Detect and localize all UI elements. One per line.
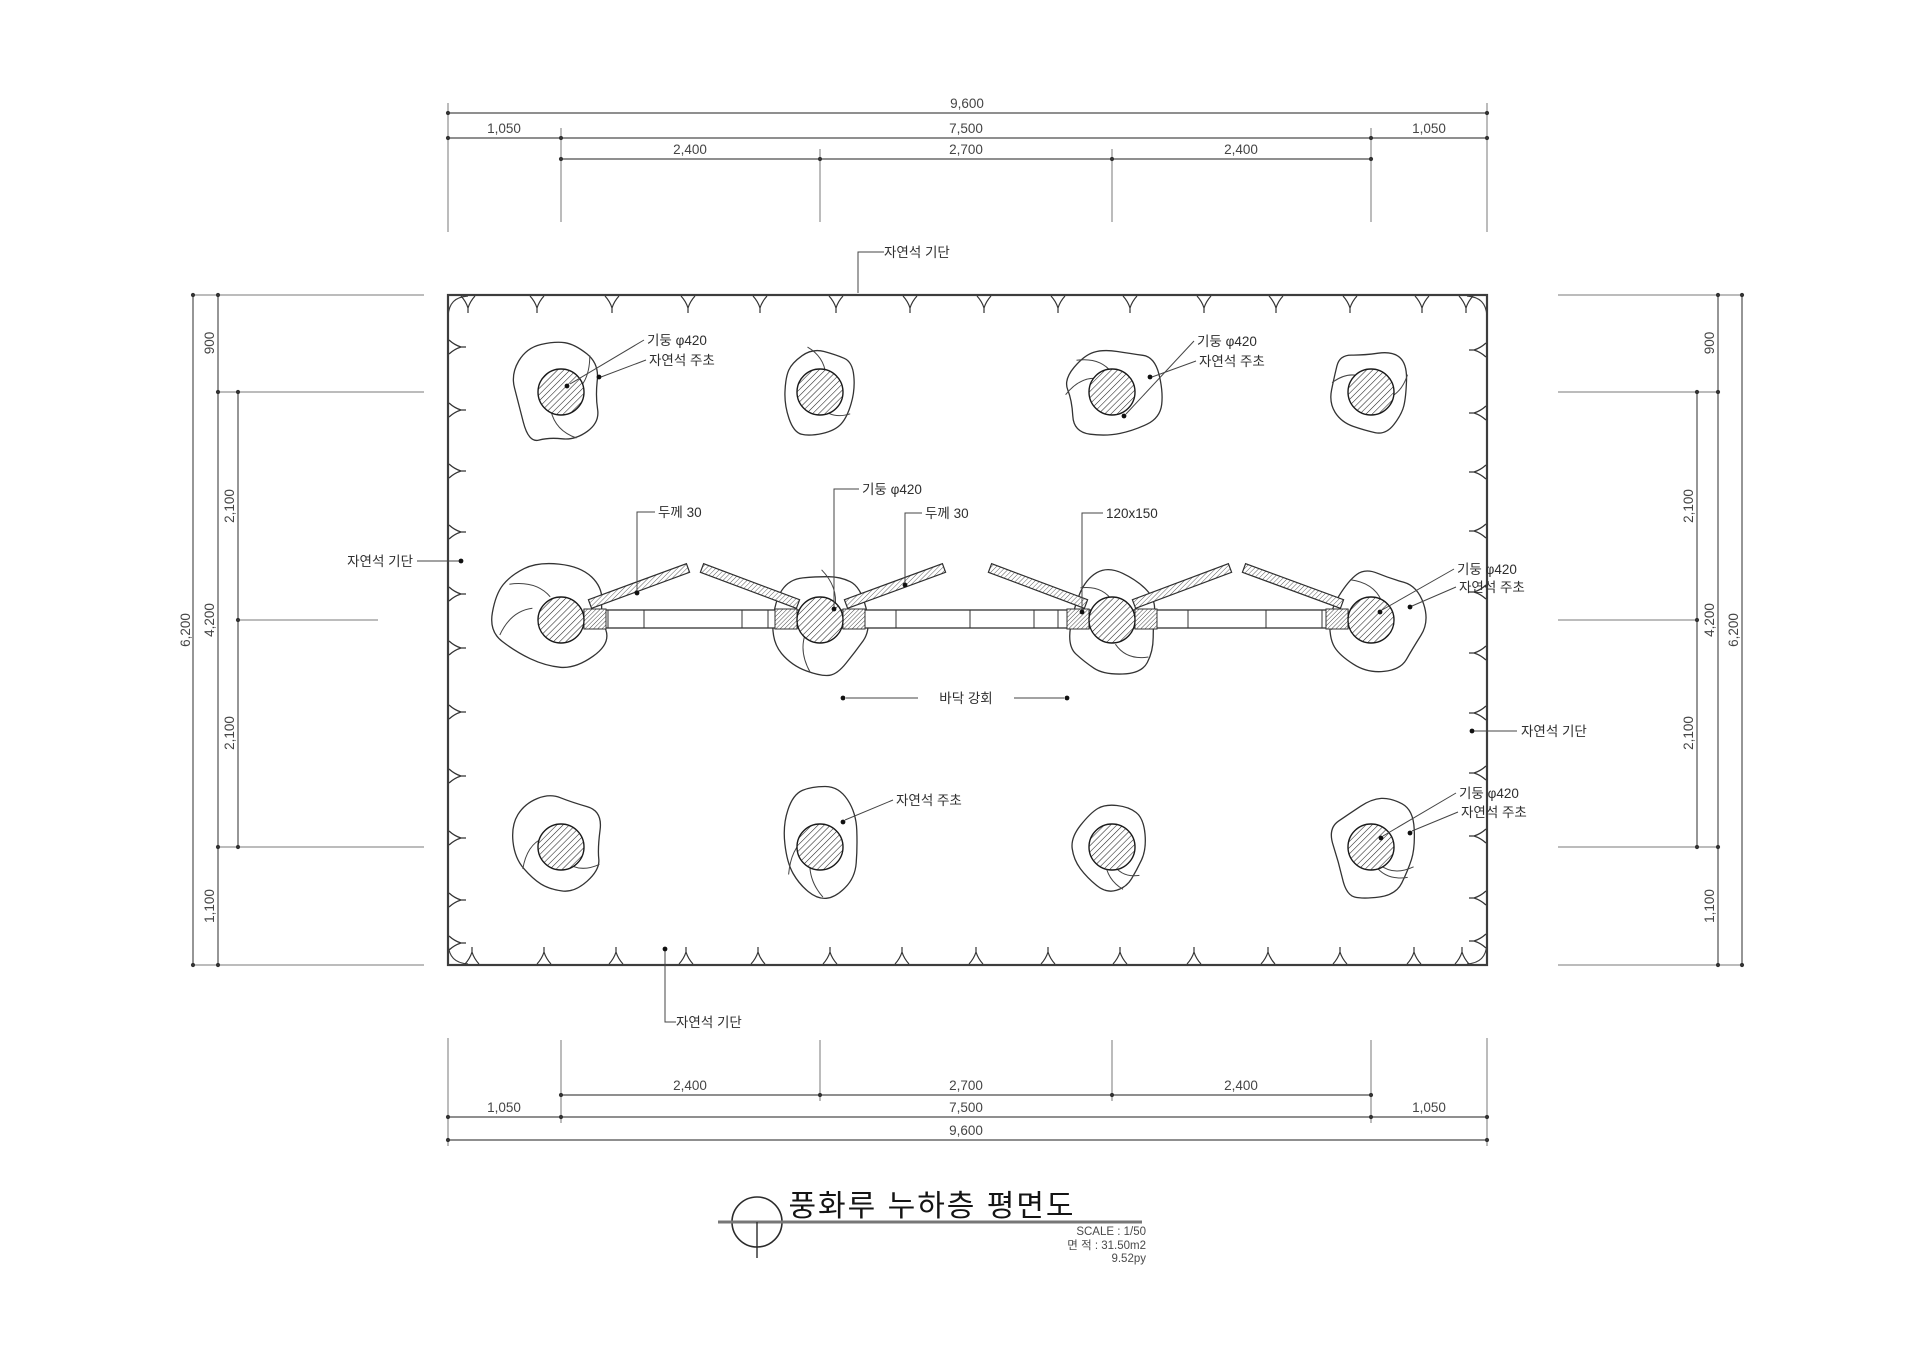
dim-left-lower: 2,100 bbox=[222, 716, 237, 750]
label-stone-base-top: 자연석 기단 bbox=[884, 245, 950, 260]
column-circle bbox=[538, 369, 584, 415]
dimension-tick bbox=[1716, 963, 1720, 967]
leader-dot bbox=[597, 375, 602, 380]
dim-top-bay2: 2,700 bbox=[949, 142, 983, 157]
dimension-tick bbox=[1716, 390, 1720, 394]
dim-bottom-bay2: 2,700 bbox=[949, 1078, 983, 1093]
leader-dot bbox=[663, 947, 668, 952]
label-stone-base-bottom: 자연석 기단 bbox=[676, 1015, 742, 1030]
dimension-tick bbox=[1485, 111, 1489, 115]
label-footing-top-right: 자연석 주초 bbox=[1199, 354, 1265, 369]
column-circle bbox=[1348, 597, 1394, 643]
dimension-tick bbox=[446, 111, 450, 115]
leader-dot bbox=[1148, 375, 1153, 380]
dimension-tick bbox=[1716, 293, 1720, 297]
dim-left-total: 6,200 bbox=[178, 613, 193, 647]
column-circle bbox=[1089, 369, 1135, 415]
label-floor-finish: 바닥 강회 bbox=[939, 691, 992, 706]
column-circle bbox=[797, 824, 843, 870]
dimension-tick bbox=[216, 845, 220, 849]
label-thickness-1: 두께 30 bbox=[658, 505, 702, 520]
dimension-tick bbox=[1695, 845, 1699, 849]
label-column-bottom-right: 기둥 φ420 bbox=[1459, 786, 1519, 801]
dimension-tick bbox=[1740, 293, 1744, 297]
dimension-tick bbox=[1485, 136, 1489, 140]
leader-line bbox=[858, 252, 884, 293]
dim-bottom-total: 9,600 bbox=[949, 1123, 983, 1138]
dim-left-span: 4,200 bbox=[202, 603, 217, 637]
dim-right-upper: 2,100 bbox=[1681, 489, 1696, 523]
beam-block-hatch bbox=[1067, 609, 1089, 629]
dim-bottom-bay3: 2,400 bbox=[1224, 1078, 1258, 1093]
dimension-tick bbox=[236, 845, 240, 849]
label-member-size: 120x150 bbox=[1106, 506, 1158, 521]
leader-dot bbox=[459, 559, 464, 564]
drawing-scale: SCALE : 1/50 bbox=[1076, 1226, 1146, 1238]
label-footing-top-left: 자연석 주초 bbox=[649, 353, 715, 368]
dim-bottom-span: 7,500 bbox=[949, 1100, 983, 1115]
leader-dot bbox=[1378, 610, 1383, 615]
floor-band bbox=[584, 609, 1348, 629]
leader-dot bbox=[1408, 605, 1413, 610]
drawing-title: 풍화루 누하층 평면도 bbox=[788, 1190, 1075, 1223]
column-circle bbox=[797, 369, 843, 415]
dimension-tick bbox=[236, 618, 240, 622]
dim-top-bay3: 2,400 bbox=[1224, 142, 1258, 157]
label-thickness-2: 두께 30 bbox=[925, 506, 969, 521]
leader-dot bbox=[1065, 696, 1070, 701]
label-column-top-left: 기둥 φ420 bbox=[647, 333, 707, 348]
label-footing-bottom-mid: 자연석 주초 bbox=[896, 793, 962, 808]
dimension-tick bbox=[1369, 1115, 1373, 1119]
dimension-tick bbox=[216, 963, 220, 967]
column-circle bbox=[538, 597, 584, 643]
column-circle bbox=[1089, 824, 1135, 870]
column-circle bbox=[1348, 369, 1394, 415]
dimension-tick bbox=[1695, 390, 1699, 394]
dimension-tick bbox=[1740, 963, 1744, 967]
dimension-tick bbox=[1369, 136, 1373, 140]
dimension-tick bbox=[1369, 1093, 1373, 1097]
dimension-tick bbox=[446, 1115, 450, 1119]
dim-top-bay1: 2,400 bbox=[673, 142, 707, 157]
dim-right-bottom: 1,100 bbox=[1702, 889, 1717, 923]
leader-dot bbox=[1122, 414, 1127, 419]
leader-dot bbox=[1379, 836, 1384, 841]
column-circle bbox=[1348, 824, 1394, 870]
beam-block-hatch bbox=[1326, 609, 1348, 629]
title-block: 풍화루 누하층 평면도 SCALE : 1/50 면 적 : 31.50m2 9… bbox=[718, 1190, 1146, 1265]
dimension-tick bbox=[1485, 1138, 1489, 1142]
label-footing-mid-right: 자연석 주초 bbox=[1459, 580, 1525, 595]
column-circle bbox=[797, 597, 843, 643]
beam-block-hatch bbox=[1135, 609, 1157, 629]
dimension-tick bbox=[1369, 157, 1373, 161]
drawing-area: 면 적 : 31.50m2 bbox=[1067, 1239, 1146, 1252]
dim-bottom-right-margin: 1,050 bbox=[1412, 1100, 1446, 1115]
leader-dot bbox=[565, 384, 570, 389]
dimension-tick bbox=[1110, 157, 1114, 161]
beam-block-hatch bbox=[843, 609, 865, 629]
drawing-area-pyeong: 9.52py bbox=[1111, 1253, 1146, 1265]
dim-left-bottom: 1,100 bbox=[202, 889, 217, 923]
dimension-tick bbox=[1110, 1093, 1114, 1097]
dimension-tick bbox=[446, 1138, 450, 1142]
dimension-tick bbox=[191, 293, 195, 297]
dim-right-total: 6,200 bbox=[1726, 613, 1741, 647]
dim-bottom-bay1: 2,400 bbox=[673, 1078, 707, 1093]
dim-top-span: 7,500 bbox=[949, 121, 983, 136]
dimension-tick bbox=[1695, 618, 1699, 622]
leader-dot bbox=[635, 591, 640, 596]
dimension-tick bbox=[559, 1093, 563, 1097]
dim-top-total: 9,600 bbox=[950, 96, 984, 111]
dim-top-right-margin: 1,050 bbox=[1412, 121, 1446, 136]
dimension-tick bbox=[236, 390, 240, 394]
floor-beam-band bbox=[584, 610, 1348, 628]
leader-dot bbox=[1470, 729, 1475, 734]
dim-right-lower: 2,100 bbox=[1681, 716, 1696, 750]
dim-right-span: 4,200 bbox=[1702, 603, 1717, 637]
column-circle bbox=[1089, 597, 1135, 643]
leader-dot bbox=[1080, 610, 1085, 615]
label-column-top-right: 기둥 φ420 bbox=[1197, 334, 1257, 349]
dimension-tick bbox=[1485, 1115, 1489, 1119]
label-footing-bottom-right: 자연석 주초 bbox=[1461, 805, 1527, 820]
dimension-tick bbox=[446, 136, 450, 140]
label-column-center: 기둥 φ420 bbox=[862, 482, 922, 497]
dim-right-top: 900 bbox=[1702, 332, 1717, 355]
label-column-mid-right: 기둥 φ420 bbox=[1457, 562, 1517, 577]
dimension-tick bbox=[559, 157, 563, 161]
beam-block-hatch bbox=[584, 609, 606, 629]
leader-dot bbox=[903, 583, 908, 588]
label-stone-base-left: 자연석 기단 bbox=[347, 554, 413, 569]
dimension-tick bbox=[216, 293, 220, 297]
leader-dot bbox=[1408, 831, 1413, 836]
dim-left-top: 900 bbox=[202, 332, 217, 355]
dimension-tick bbox=[191, 963, 195, 967]
dim-bottom-left-margin: 1,050 bbox=[487, 1100, 521, 1115]
leader-dot bbox=[841, 820, 846, 825]
dim-left-upper: 2,100 bbox=[222, 489, 237, 523]
label-stone-base-right: 자연석 기단 bbox=[1521, 724, 1587, 739]
leader-dot bbox=[841, 696, 846, 701]
leader-dot bbox=[832, 607, 837, 612]
dimension-tick bbox=[818, 157, 822, 161]
beam-block-hatch bbox=[775, 609, 797, 629]
dimension-tick bbox=[559, 136, 563, 140]
dimension-tick bbox=[559, 1115, 563, 1119]
column-circle bbox=[538, 824, 584, 870]
dimension-tick bbox=[216, 390, 220, 394]
dimension-tick bbox=[1716, 845, 1720, 849]
dim-top-left-margin: 1,050 bbox=[487, 121, 521, 136]
dimension-tick bbox=[818, 1093, 822, 1097]
floor-plan-drawing: 9,600 1,050 7,500 1,050 2,400 2,700 2,40… bbox=[0, 0, 1920, 1358]
